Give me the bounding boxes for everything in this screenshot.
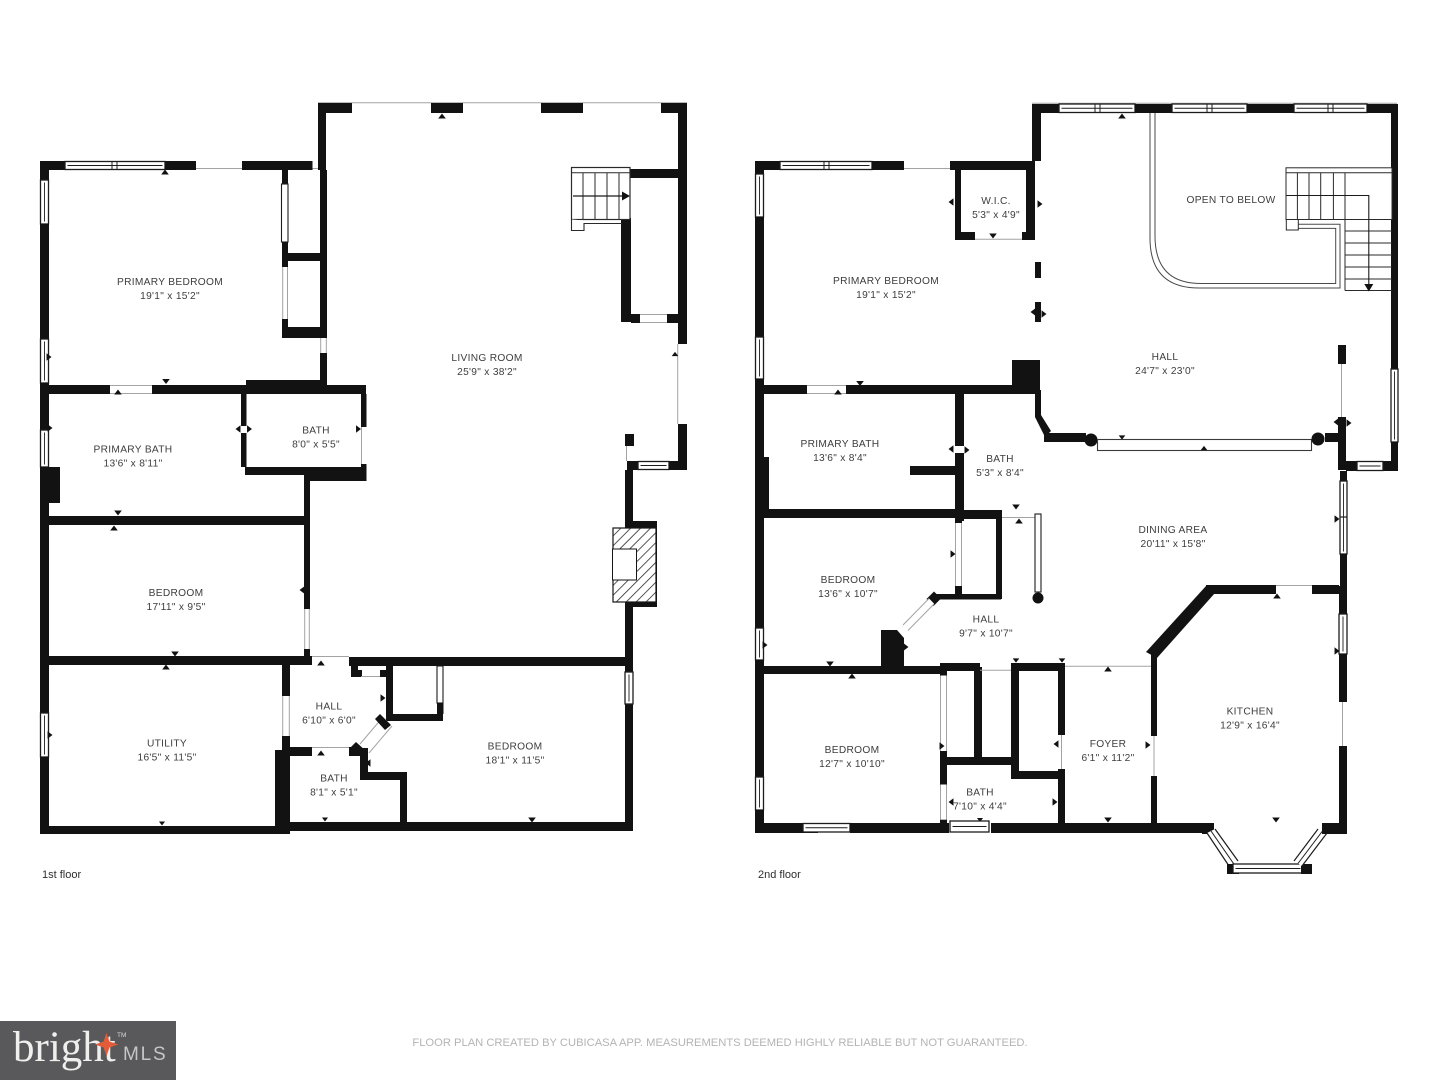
svg-text:BEDROOM: BEDROOM xyxy=(488,742,543,753)
svg-text:12'7" x 10'10": 12'7" x 10'10" xyxy=(819,759,885,770)
svg-text:9'7" x 10'7": 9'7" x 10'7" xyxy=(959,629,1013,640)
svg-text:BATH: BATH xyxy=(966,788,994,799)
svg-text:5'3" x 4'9": 5'3" x 4'9" xyxy=(972,210,1020,221)
svg-text:HALL: HALL xyxy=(973,615,1000,626)
svg-text:FLOOR PLAN CREATED BY CUBICASA: FLOOR PLAN CREATED BY CUBICASA APP. MEAS… xyxy=(412,1037,1027,1049)
svg-text:20'11" x 15'8": 20'11" x 15'8" xyxy=(1141,539,1206,550)
svg-text:8'1" x 5'1": 8'1" x 5'1" xyxy=(310,788,358,799)
svg-text:19'1" x 15'2": 19'1" x 15'2" xyxy=(140,291,200,302)
svg-text:BEDROOM: BEDROOM xyxy=(821,575,876,586)
svg-text:5'3" x 8'4": 5'3" x 8'4" xyxy=(976,468,1024,479)
svg-text:6'10" x 6'0": 6'10" x 6'0" xyxy=(302,716,356,727)
svg-text:2nd floor: 2nd floor xyxy=(758,869,801,881)
svg-text:1st floor: 1st floor xyxy=(42,869,81,881)
svg-text:18'1" x 11'5": 18'1" x 11'5" xyxy=(485,756,544,767)
svg-text:MLS: MLS xyxy=(123,1044,167,1065)
svg-text:LIVING ROOM: LIVING ROOM xyxy=(451,353,522,364)
svg-text:16'5" x 11'5": 16'5" x 11'5" xyxy=(137,753,196,764)
svg-text:BATH: BATH xyxy=(986,454,1014,465)
svg-text:PRIMARY BATH: PRIMARY BATH xyxy=(801,439,880,450)
svg-text:7'10" x 4'4": 7'10" x 4'4" xyxy=(953,802,1007,813)
svg-text:W.I.C.: W.I.C. xyxy=(981,196,1011,207)
svg-text:bright: bright xyxy=(13,1024,116,1071)
svg-text:24'7" x 23'0": 24'7" x 23'0" xyxy=(1135,366,1195,377)
svg-text:13'6" x 10'7": 13'6" x 10'7" xyxy=(818,589,878,600)
svg-text:DINING AREA: DINING AREA xyxy=(1139,525,1208,536)
svg-text:13'6" x 8'11": 13'6" x 8'11" xyxy=(103,459,162,470)
svg-text:BEDROOM: BEDROOM xyxy=(149,588,204,599)
svg-text:BEDROOM: BEDROOM xyxy=(825,745,880,756)
svg-text:HALL: HALL xyxy=(1152,352,1179,363)
svg-text:UTILITY: UTILITY xyxy=(147,739,187,750)
svg-text:PRIMARY BATH: PRIMARY BATH xyxy=(94,445,173,456)
svg-text:17'11" x 9'5": 17'11" x 9'5" xyxy=(146,602,205,613)
svg-text:OPEN TO BELOW: OPEN TO BELOW xyxy=(1186,195,1275,206)
svg-text:PRIMARY BEDROOM: PRIMARY BEDROOM xyxy=(117,277,223,288)
svg-text:6'1" x 11'2": 6'1" x 11'2" xyxy=(1081,753,1134,764)
svg-text:12'9" x 16'4": 12'9" x 16'4" xyxy=(1220,721,1280,732)
svg-text:8'0" x 5'5": 8'0" x 5'5" xyxy=(292,440,340,451)
svg-text:KITCHEN: KITCHEN xyxy=(1227,707,1274,718)
svg-text:FOYER: FOYER xyxy=(1090,739,1127,750)
svg-text:13'6" x 8'4": 13'6" x 8'4" xyxy=(813,453,867,464)
svg-text:HALL: HALL xyxy=(316,702,343,713)
svg-text:BATH: BATH xyxy=(302,426,330,437)
svg-text:25'9" x 38'2": 25'9" x 38'2" xyxy=(457,367,517,378)
svg-text:19'1" x 15'2": 19'1" x 15'2" xyxy=(856,290,916,301)
svg-text:BATH: BATH xyxy=(320,774,348,785)
svg-text:PRIMARY BEDROOM: PRIMARY BEDROOM xyxy=(833,276,939,287)
svg-text:TM: TM xyxy=(117,1032,126,1039)
